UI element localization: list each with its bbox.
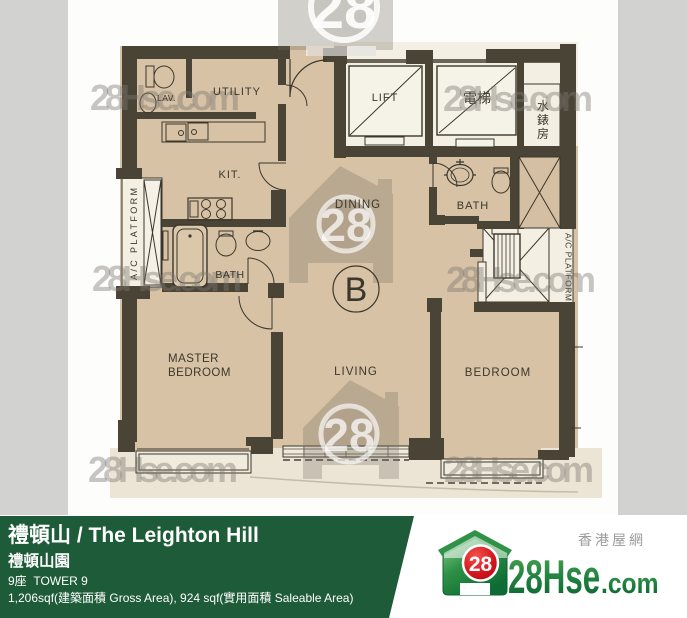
svg-text:UTILITY: UTILITY bbox=[213, 86, 261, 98]
svg-text:28: 28 bbox=[469, 553, 493, 576]
svg-text:MASTER: MASTER bbox=[168, 353, 219, 365]
svg-text:BEDROOM: BEDROOM bbox=[168, 367, 231, 379]
svg-text:KIT.: KIT. bbox=[219, 169, 242, 181]
svg-text:LIFT: LIFT bbox=[372, 92, 399, 104]
svg-text:BATH: BATH bbox=[215, 269, 244, 281]
svg-text:LIVING: LIVING bbox=[334, 366, 378, 378]
svg-text:28Hse.com: 28Hse.com bbox=[446, 259, 596, 300]
svg-text:28: 28 bbox=[312, 0, 377, 41]
svg-text:28Hse.com: 28Hse.com bbox=[88, 449, 238, 490]
svg-text:DINING: DINING bbox=[335, 199, 381, 211]
svg-text:28: 28 bbox=[323, 409, 374, 461]
svg-text:LAV.: LAV. bbox=[157, 93, 176, 103]
svg-text:28Hse.com: 28Hse.com bbox=[444, 449, 594, 490]
svg-text:BEDROOM: BEDROOM bbox=[465, 367, 531, 379]
svg-text:香港屋網: 香港屋網 bbox=[578, 532, 646, 548]
svg-text:BATH: BATH bbox=[457, 200, 490, 212]
svg-text:B: B bbox=[345, 271, 368, 309]
svg-text:28Hse: 28Hse bbox=[508, 552, 600, 604]
svg-text:28Hse.com: 28Hse.com bbox=[443, 78, 593, 119]
svg-text:.com: .com bbox=[601, 567, 659, 599]
svg-text:房: 房 bbox=[537, 126, 549, 141]
